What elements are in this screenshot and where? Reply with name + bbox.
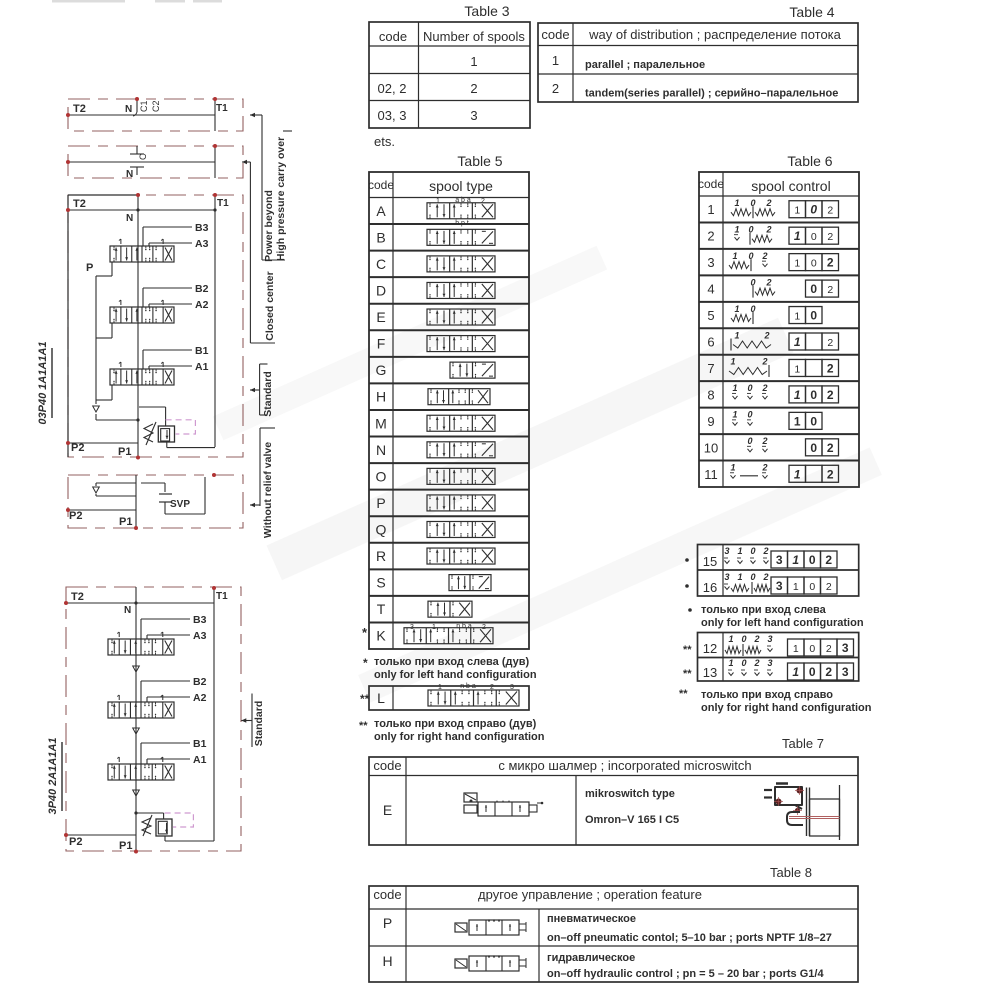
svg-text:0: 0: [741, 634, 746, 644]
svg-text:Table 8: Table 8: [770, 865, 812, 880]
svg-text:1: 1: [728, 658, 733, 668]
svg-text:3: 3: [767, 658, 772, 668]
svg-text:High pressure carry over: High pressure carry over: [275, 137, 287, 261]
svg-text:2: 2: [761, 463, 767, 473]
svg-text:1: 1: [792, 665, 799, 679]
svg-text:P1: P1: [118, 446, 131, 458]
svg-text:1: 1: [732, 383, 737, 393]
svg-text:0: 0: [810, 282, 817, 296]
svg-text:code: code: [368, 178, 394, 192]
svg-text:only for right hand configurat: only for right hand configuration: [374, 731, 545, 743]
svg-text:code: code: [379, 29, 407, 44]
svg-text:2: 2: [762, 572, 768, 582]
svg-text:2: 2: [827, 205, 833, 217]
svg-text:**: **: [683, 644, 692, 656]
svg-text:1: 1: [794, 229, 801, 243]
svg-text:n b a: n b a: [456, 623, 472, 630]
svg-text:0: 0: [810, 309, 817, 323]
svg-text:3: 3: [724, 572, 729, 582]
svg-text:A: A: [376, 203, 386, 219]
svg-text:F: F: [377, 336, 386, 352]
svg-text:D: D: [376, 282, 386, 298]
svg-text:T: T: [377, 601, 386, 617]
svg-text:7: 7: [707, 361, 714, 376]
svg-text:0: 0: [747, 383, 752, 393]
svg-text:1: 1: [552, 53, 559, 68]
svg-text:2: 2: [482, 624, 486, 631]
svg-text:Table 6: Table 6: [787, 153, 832, 169]
svg-text:0: 0: [750, 572, 755, 582]
svg-text:1: 1: [792, 553, 799, 567]
svg-text:0: 0: [809, 665, 816, 679]
svg-text:P2: P2: [69, 836, 82, 848]
svg-text:03, 3: 03, 3: [378, 108, 407, 123]
svg-text:Table 5: Table 5: [457, 153, 502, 169]
svg-text:Omron–V 165 I C5: Omron–V 165 I C5: [585, 814, 679, 826]
svg-text:0: 0: [750, 546, 755, 556]
svg-text:2: 2: [827, 441, 834, 455]
svg-text:2: 2: [827, 361, 834, 375]
svg-text:0: 0: [809, 581, 815, 593]
svg-text:only for right hand configurat: only for right hand configuration: [701, 702, 872, 714]
svg-text:only for left hand configurati: only for left hand configuration: [374, 669, 537, 681]
svg-text:A3: A3: [195, 238, 209, 250]
svg-text:Number of spools: Number of spools: [423, 29, 525, 44]
svg-text:3: 3: [842, 665, 849, 679]
svg-text:P: P: [383, 915, 392, 931]
svg-text:1: 1: [438, 684, 442, 691]
svg-text:E: E: [376, 309, 385, 325]
svg-text:1: 1: [432, 624, 436, 631]
svg-text:только при вход справо: только при вход справо: [701, 689, 833, 701]
svg-text:**: **: [359, 720, 368, 732]
svg-text:1: 1: [730, 357, 735, 367]
svg-text:way of distribution ; распреде: way of distribution ; распределение пото…: [588, 27, 842, 42]
svg-text:N: N: [124, 605, 131, 616]
svg-text:T2: T2: [71, 591, 84, 603]
svg-text:16: 16: [703, 580, 717, 595]
svg-text:2: 2: [827, 256, 834, 270]
svg-text:1: 1: [732, 251, 737, 261]
svg-text:H: H: [382, 953, 392, 969]
svg-text:1: 1: [707, 202, 714, 217]
svg-text:0: 0: [741, 658, 746, 668]
svg-text:A2: A2: [195, 299, 209, 311]
svg-text:N: N: [376, 442, 386, 458]
svg-text:2: 2: [827, 388, 834, 402]
svg-text:0: 0: [811, 258, 817, 270]
svg-text:13: 13: [703, 665, 717, 680]
svg-text:SVP: SVP: [170, 499, 190, 510]
svg-text:3: 3: [842, 641, 849, 655]
svg-text:3: 3: [724, 546, 729, 556]
svg-text:1: 1: [436, 198, 440, 205]
svg-text:h p t: h p t: [455, 220, 469, 227]
svg-text:code: code: [541, 27, 569, 42]
svg-text:15: 15: [703, 554, 717, 569]
svg-text:N: N: [125, 104, 132, 115]
svg-text:другое управление ; operation: другое управление ; operation feature: [478, 887, 702, 902]
svg-text:C2: C2: [151, 100, 161, 112]
svg-text:P1: P1: [119, 516, 132, 528]
svg-text:1: 1: [794, 335, 801, 349]
svg-text:T2: T2: [73, 103, 86, 115]
svg-text:только при вход слева: только при вход слева: [701, 604, 827, 616]
svg-text:0: 0: [811, 231, 817, 243]
svg-text:R: R: [376, 548, 386, 564]
svg-text:A2: A2: [193, 692, 207, 704]
svg-text:spool type: spool type: [429, 178, 493, 194]
svg-text:2: 2: [761, 436, 767, 446]
svg-text:spool control: spool control: [751, 178, 830, 194]
svg-text:1: 1: [470, 54, 477, 69]
svg-text:B3: B3: [193, 614, 207, 626]
svg-text:3: 3: [410, 624, 414, 631]
svg-text:2: 2: [761, 357, 767, 367]
svg-text:K: K: [376, 628, 386, 644]
svg-text:10: 10: [704, 440, 718, 455]
svg-text:03P40 1A1A1A1: 03P40 1A1A1A1: [37, 341, 49, 424]
svg-text:code: code: [373, 887, 401, 902]
svg-text:2: 2: [753, 634, 759, 644]
svg-text:2: 2: [552, 81, 559, 96]
svg-text:B1: B1: [193, 738, 207, 750]
svg-text:A1: A1: [195, 361, 209, 373]
svg-text:P2: P2: [71, 442, 84, 454]
svg-text:a b a: a b a: [455, 197, 471, 204]
svg-text:1: 1: [734, 330, 739, 340]
svg-text:1: 1: [794, 311, 800, 323]
svg-text:G: G: [376, 362, 387, 378]
svg-text:2: 2: [827, 467, 834, 481]
svg-text:P2: P2: [69, 510, 82, 522]
svg-text:ets.: ets.: [374, 134, 395, 149]
svg-text:C1: C1: [139, 100, 149, 112]
svg-text:Closed center: Closed center: [264, 271, 276, 340]
svg-text:2: 2: [707, 229, 714, 244]
svg-text:P: P: [376, 495, 385, 511]
svg-text:on–off pneumatic contol; 5–10: on–off pneumatic contol; 5–10 bar ; port…: [547, 932, 832, 944]
svg-text:3: 3: [767, 634, 772, 644]
svg-text:N: N: [126, 213, 133, 224]
svg-text:0: 0: [809, 553, 816, 567]
svg-text:1: 1: [728, 634, 733, 644]
svg-text:1: 1: [730, 463, 735, 473]
svg-text:1: 1: [793, 643, 799, 655]
svg-text:1: 1: [734, 224, 739, 234]
svg-text:E: E: [383, 802, 392, 818]
svg-text:2: 2: [761, 383, 767, 393]
svg-text:2: 2: [753, 658, 759, 668]
svg-text:**: **: [683, 668, 692, 680]
svg-text:02, 2: 02, 2: [378, 81, 407, 96]
svg-text:0: 0: [810, 388, 817, 402]
svg-text:T1: T1: [216, 591, 228, 602]
svg-text:n b a: n b a: [460, 683, 476, 690]
svg-text:S: S: [376, 575, 385, 591]
svg-text:B2: B2: [195, 283, 209, 295]
svg-text:tandem(series parallel) ; сери: tandem(series parallel) ; серийно–парале…: [585, 88, 838, 100]
svg-text:0: 0: [810, 203, 817, 217]
svg-text:1: 1: [737, 546, 742, 556]
svg-text:Table 3: Table 3: [464, 3, 509, 19]
svg-text:T2: T2: [73, 198, 86, 210]
svg-text:**: **: [360, 692, 370, 706]
svg-text:2: 2: [762, 546, 768, 556]
svg-text:0: 0: [809, 643, 815, 655]
svg-text:C: C: [376, 256, 386, 272]
svg-text:6: 6: [707, 335, 714, 350]
svg-text:2: 2: [825, 553, 832, 567]
svg-text:Power beyond: Power beyond: [263, 190, 275, 262]
svg-text:code: code: [373, 758, 401, 773]
svg-text:1: 1: [794, 467, 801, 481]
svg-text:C: C: [138, 153, 148, 160]
svg-text:Standard: Standard: [262, 371, 274, 417]
svg-text:2: 2: [470, 81, 477, 96]
svg-text:пневматическое: пневматическое: [547, 913, 636, 925]
svg-text:3: 3: [707, 255, 714, 270]
svg-text:O: O: [376, 468, 387, 484]
svg-text:только при вход справо (дув): только при вход справо (дув): [374, 718, 537, 730]
svg-text:0: 0: [747, 410, 752, 420]
svg-text:M: M: [375, 415, 387, 431]
svg-text:T1: T1: [217, 198, 229, 209]
svg-text:9: 9: [707, 414, 714, 429]
svg-text:0: 0: [747, 436, 752, 446]
svg-text:2: 2: [765, 198, 771, 208]
svg-text:N: N: [126, 169, 133, 180]
svg-text:4: 4: [707, 282, 714, 297]
svg-text:3: 3: [776, 579, 783, 593]
svg-text:Standard: Standard: [253, 701, 265, 747]
svg-text:1: 1: [794, 205, 800, 217]
svg-text:1: 1: [794, 388, 801, 402]
svg-text:1: 1: [794, 414, 801, 428]
svg-text:2: 2: [827, 284, 833, 296]
svg-text:*: *: [363, 656, 368, 670]
svg-text:2: 2: [826, 643, 832, 655]
svg-text:1: 1: [794, 363, 800, 375]
svg-text:2: 2: [826, 581, 832, 593]
svg-text:1: 1: [734, 304, 739, 314]
svg-text:A3: A3: [193, 630, 207, 642]
svg-text:только при вход слева (дув): только при вход слева (дув): [374, 656, 530, 668]
svg-text:0: 0: [810, 441, 817, 455]
svg-text:5: 5: [707, 308, 714, 323]
svg-text:3: 3: [510, 684, 514, 691]
svg-text:P: P: [86, 262, 93, 274]
svg-text:8: 8: [707, 387, 714, 402]
svg-text:1: 1: [793, 581, 799, 593]
svg-text:on–off hydraulic control ; pn: on–off hydraulic control ; pn = 5 – 20 b…: [547, 968, 824, 980]
svg-text:mikroswitch type: mikroswitch type: [585, 788, 675, 800]
svg-text:Table 7: Table 7: [782, 736, 824, 751]
svg-text:2: 2: [481, 198, 485, 205]
svg-text:гидравлическое: гидравлическое: [547, 952, 635, 964]
svg-text:Table 4: Table 4: [789, 4, 834, 20]
svg-text:Without relief valve: Without relief valve: [262, 442, 274, 538]
svg-text:L: L: [377, 690, 385, 706]
svg-text:B3: B3: [195, 222, 209, 234]
svg-text:code: code: [698, 177, 724, 191]
svg-text:T1: T1: [216, 103, 228, 114]
svg-text:2: 2: [765, 277, 771, 287]
svg-text:2: 2: [765, 224, 771, 234]
svg-text:1: 1: [737, 572, 742, 582]
svg-text:**: **: [679, 688, 688, 700]
svg-text:A1: A1: [193, 754, 207, 766]
svg-text:2: 2: [763, 330, 769, 340]
svg-text:2: 2: [827, 337, 833, 349]
svg-text:only for left hand configurati: only for left hand configuration: [701, 617, 864, 629]
svg-text:2: 2: [761, 251, 767, 261]
svg-text:parallel ; паралельное: parallel ; паралельное: [585, 59, 705, 71]
svg-text:3P40 2A1A1A1: 3P40 2A1A1A1: [47, 737, 59, 814]
svg-text:0: 0: [748, 224, 753, 234]
svg-text:1: 1: [734, 198, 739, 208]
svg-text:B: B: [376, 229, 385, 245]
svg-text:11: 11: [704, 467, 718, 482]
svg-text:2: 2: [490, 684, 494, 691]
svg-text:H: H: [376, 389, 386, 405]
svg-text:B1: B1: [195, 345, 209, 357]
svg-text:2: 2: [825, 665, 832, 679]
svg-text:B2: B2: [193, 676, 207, 688]
svg-text:1: 1: [732, 410, 737, 420]
svg-text:Q: Q: [376, 521, 387, 537]
svg-text:2: 2: [827, 231, 833, 243]
svg-text:1: 1: [794, 258, 800, 270]
svg-text:P1: P1: [119, 840, 132, 852]
svg-text:с микро шалмер ; incorporated: с микро шалмер ; incorporated microswitc…: [498, 758, 751, 773]
svg-text:3: 3: [776, 553, 783, 567]
svg-text:3: 3: [470, 108, 477, 123]
svg-text:12: 12: [703, 641, 717, 656]
svg-text:0: 0: [810, 414, 817, 428]
